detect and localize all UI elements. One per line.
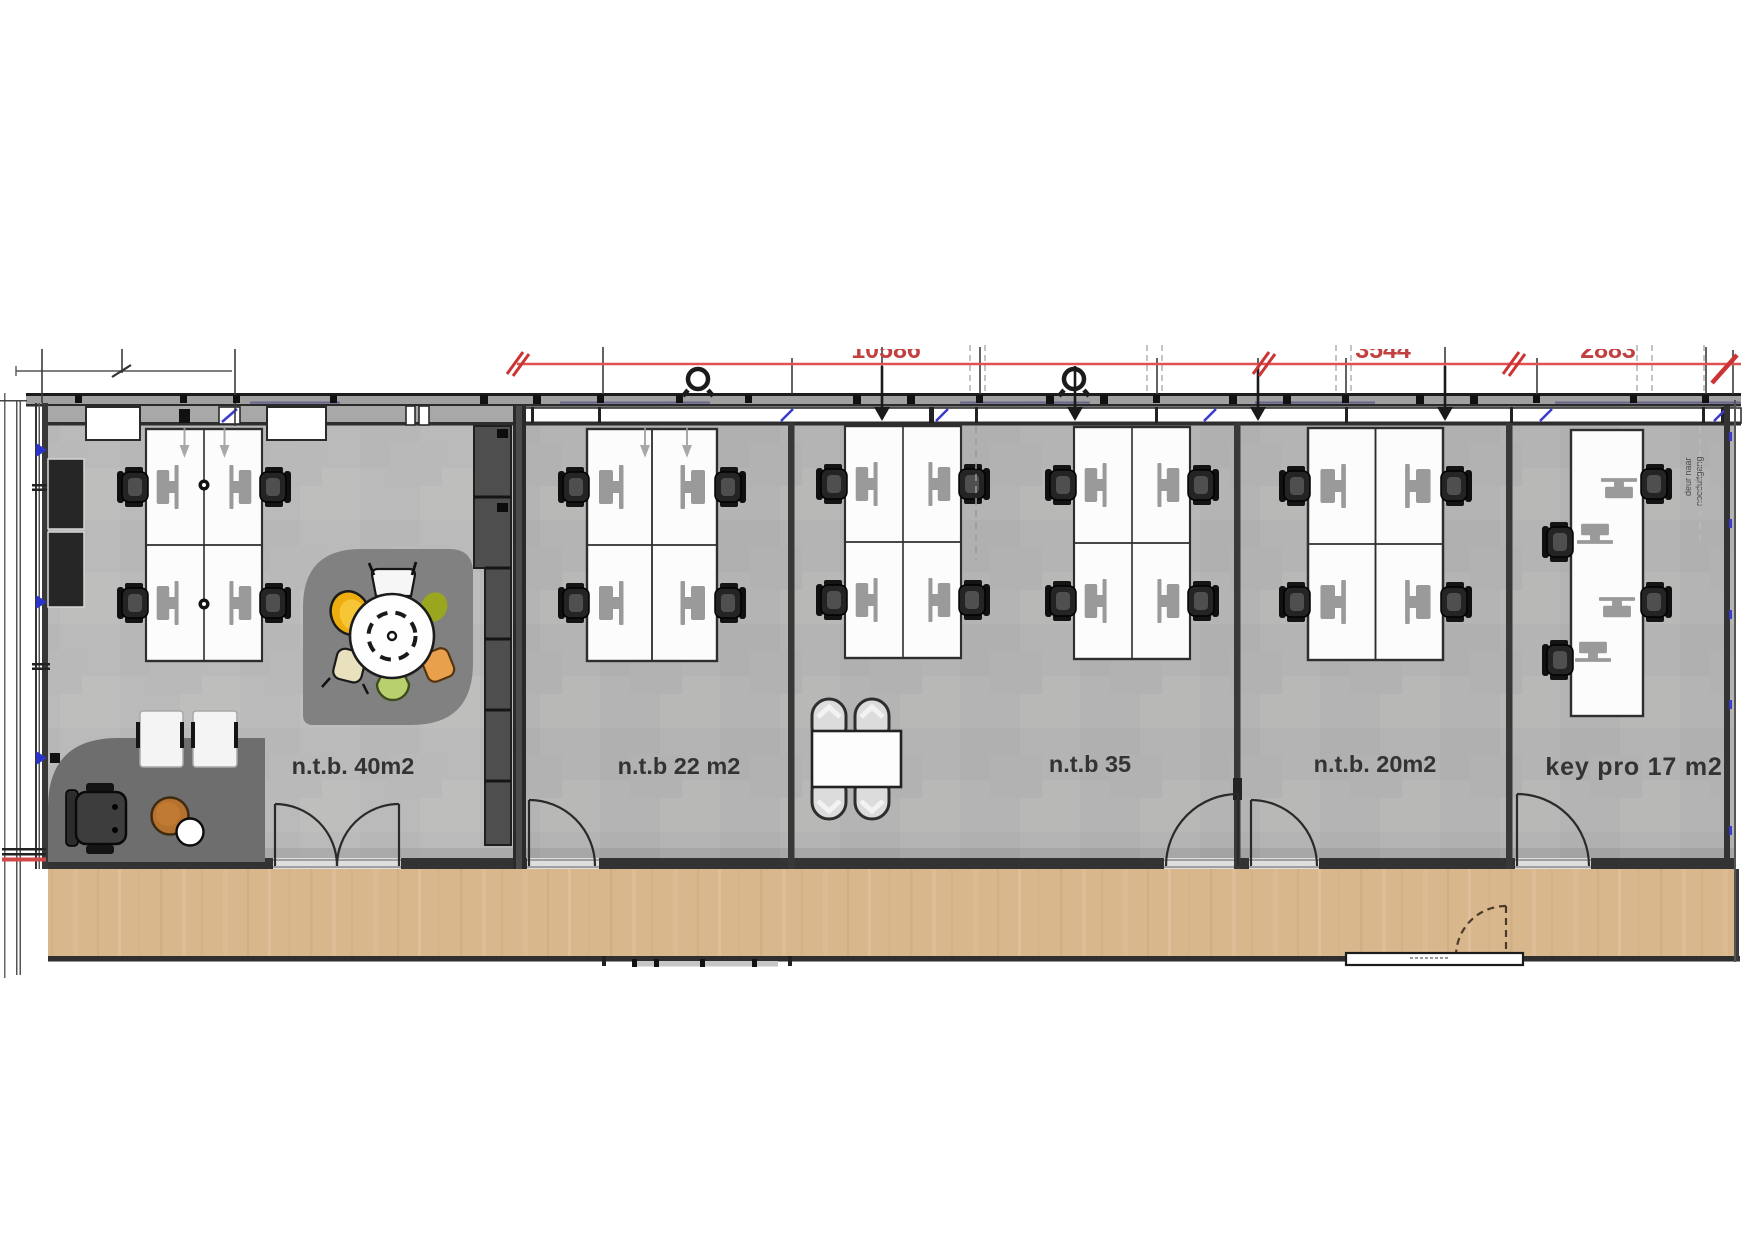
svg-text:n.t.b 22 m2: n.t.b 22 m2 — [618, 753, 741, 779]
svg-text:n.t.b. 20m2: n.t.b. 20m2 — [1314, 751, 1437, 777]
svg-text:key pro 17 m2: key pro 17 m2 — [1545, 753, 1722, 781]
svg-text:deur naar: deur naar — [1683, 457, 1693, 496]
svg-text:nooduitgang: nooduitgang — [1694, 456, 1704, 506]
svg-text:n.t.b. 40m2: n.t.b. 40m2 — [292, 753, 415, 779]
svg-text:n.t.b 35: n.t.b 35 — [1049, 751, 1131, 777]
